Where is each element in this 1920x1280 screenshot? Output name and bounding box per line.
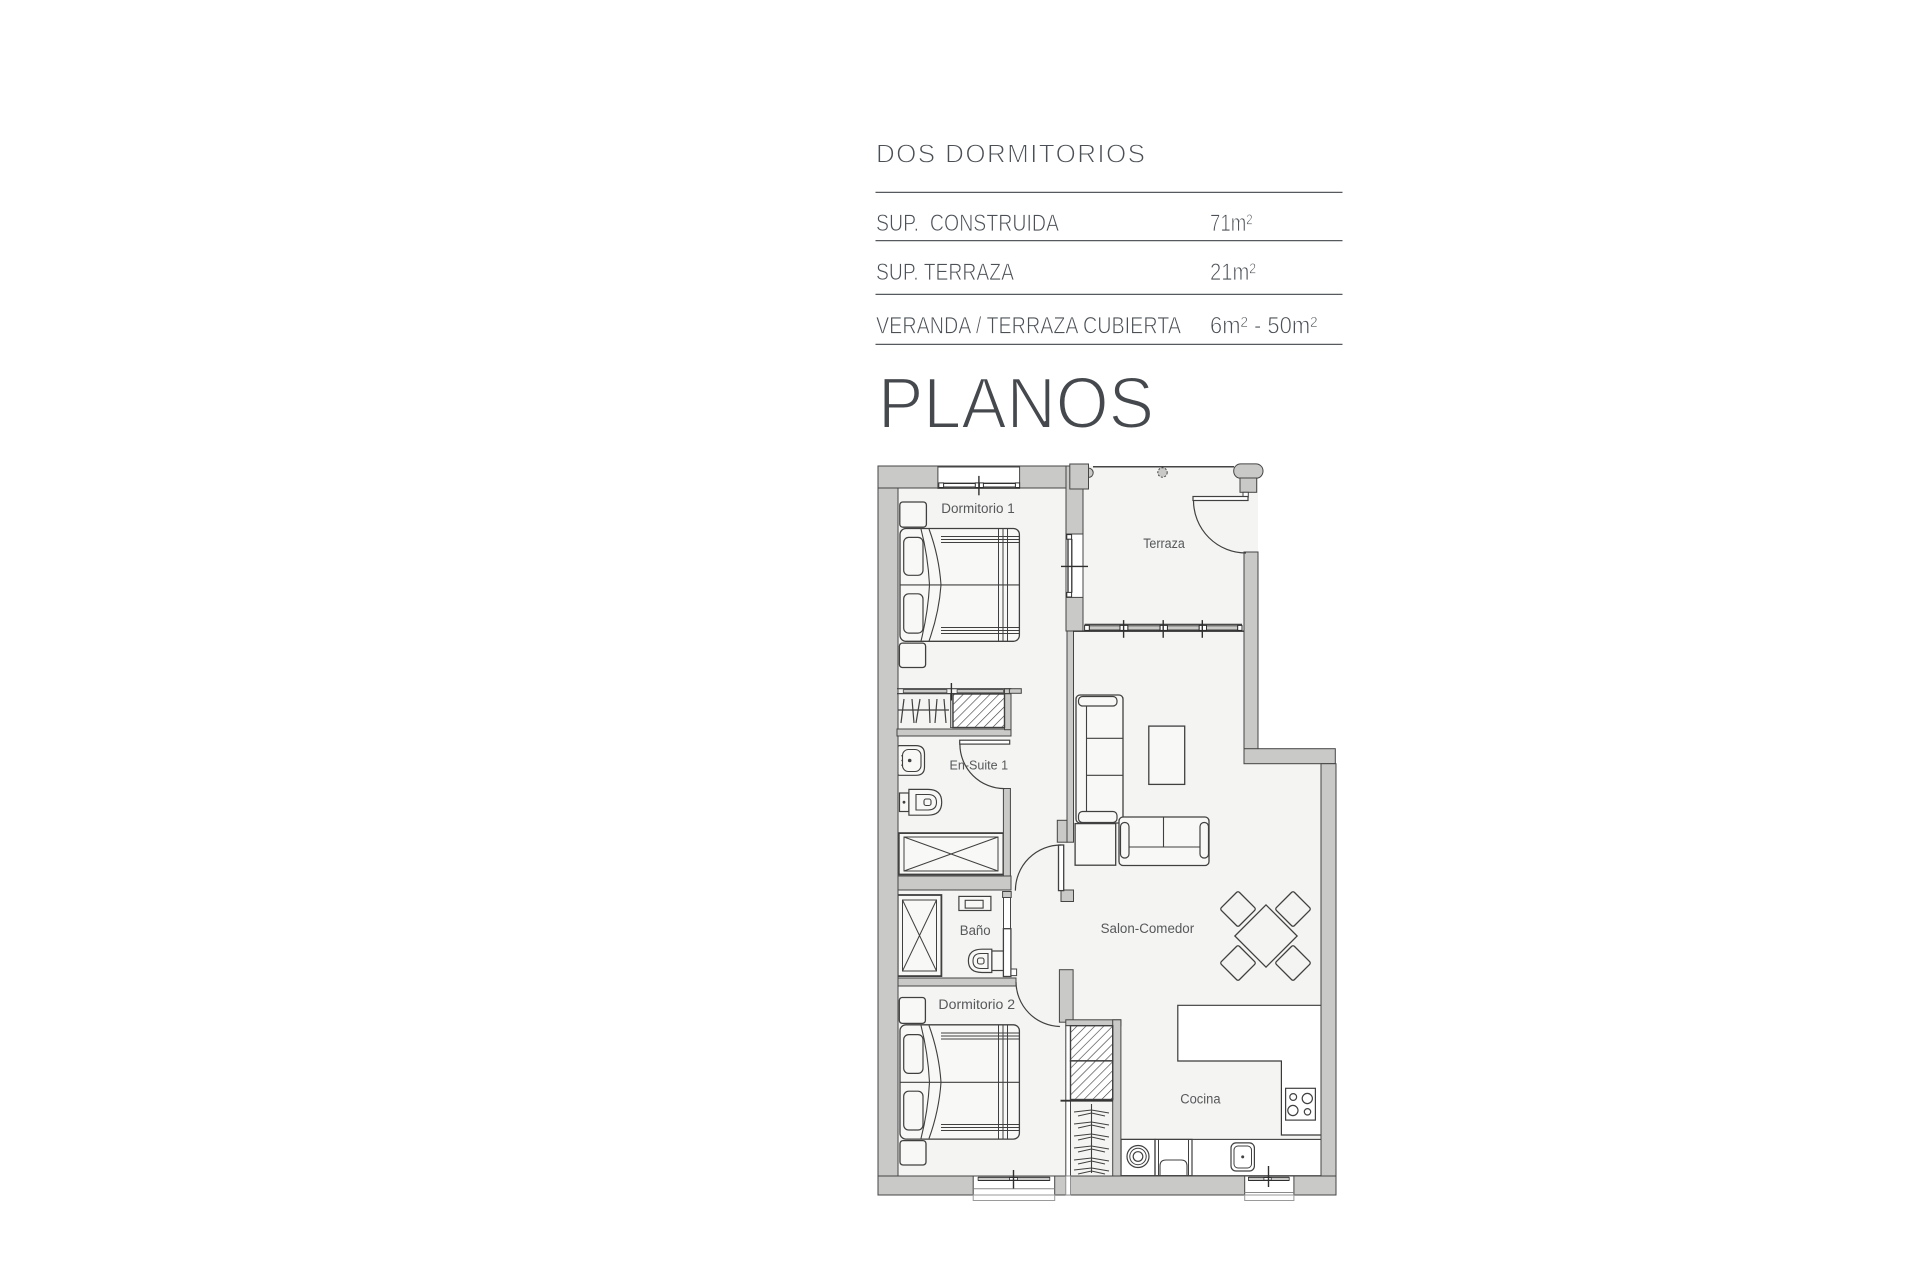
svg-text:71m²: 71m²	[1210, 210, 1253, 237]
svg-text:Baño: Baño	[960, 923, 991, 938]
svg-text:Salon-Comedor: Salon-Comedor	[1101, 921, 1195, 936]
svg-text:DOS DORMITORIOS: DOS DORMITORIOS	[876, 139, 1145, 169]
svg-text:Dormitorio 2: Dormitorio 2	[938, 997, 1015, 1012]
svg-text:Dormitorio 1: Dormitorio 1	[941, 501, 1014, 516]
svg-text:6m² - 50m²: 6m² - 50m²	[1210, 313, 1318, 340]
svg-text:21m²: 21m²	[1210, 259, 1256, 286]
svg-text:VERANDA / TERRAZA CUBIERTA: VERANDA / TERRAZA CUBIERTA	[876, 313, 1181, 340]
svg-text:PLANOS: PLANOS	[878, 364, 1154, 444]
svg-text:Cocina: Cocina	[1180, 1092, 1221, 1107]
svg-text:SUP. CONSTRUIDA: SUP. CONSTRUIDA	[876, 210, 1059, 237]
svg-text:En-Suite 1: En-Suite 1	[950, 759, 1009, 773]
svg-text:Terraza: Terraza	[1143, 536, 1185, 551]
svg-text:SUP. TERRAZA: SUP. TERRAZA	[876, 259, 1014, 286]
